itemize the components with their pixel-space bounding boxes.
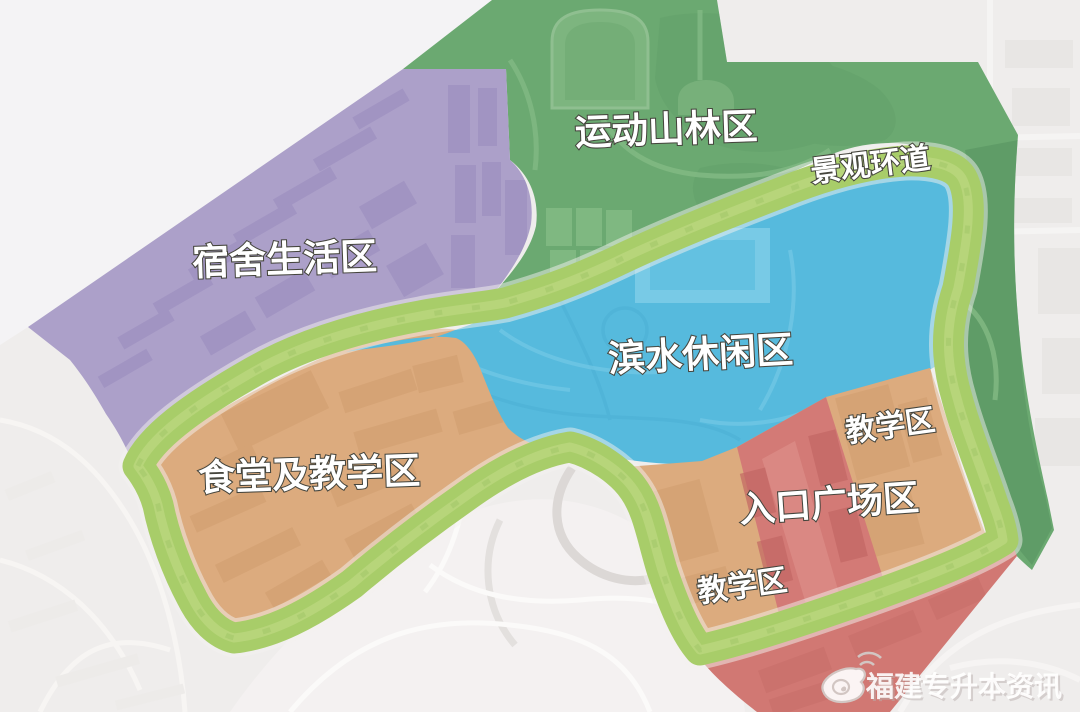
svg-text:福建专升本资讯: 福建专升本资讯: [865, 671, 1062, 702]
svg-text:宿舍生活区: 宿舍生活区: [191, 235, 377, 283]
svg-text:食堂及教学区: 食堂及教学区: [198, 449, 421, 499]
svg-text:运动山林区: 运动山林区: [574, 106, 758, 153]
